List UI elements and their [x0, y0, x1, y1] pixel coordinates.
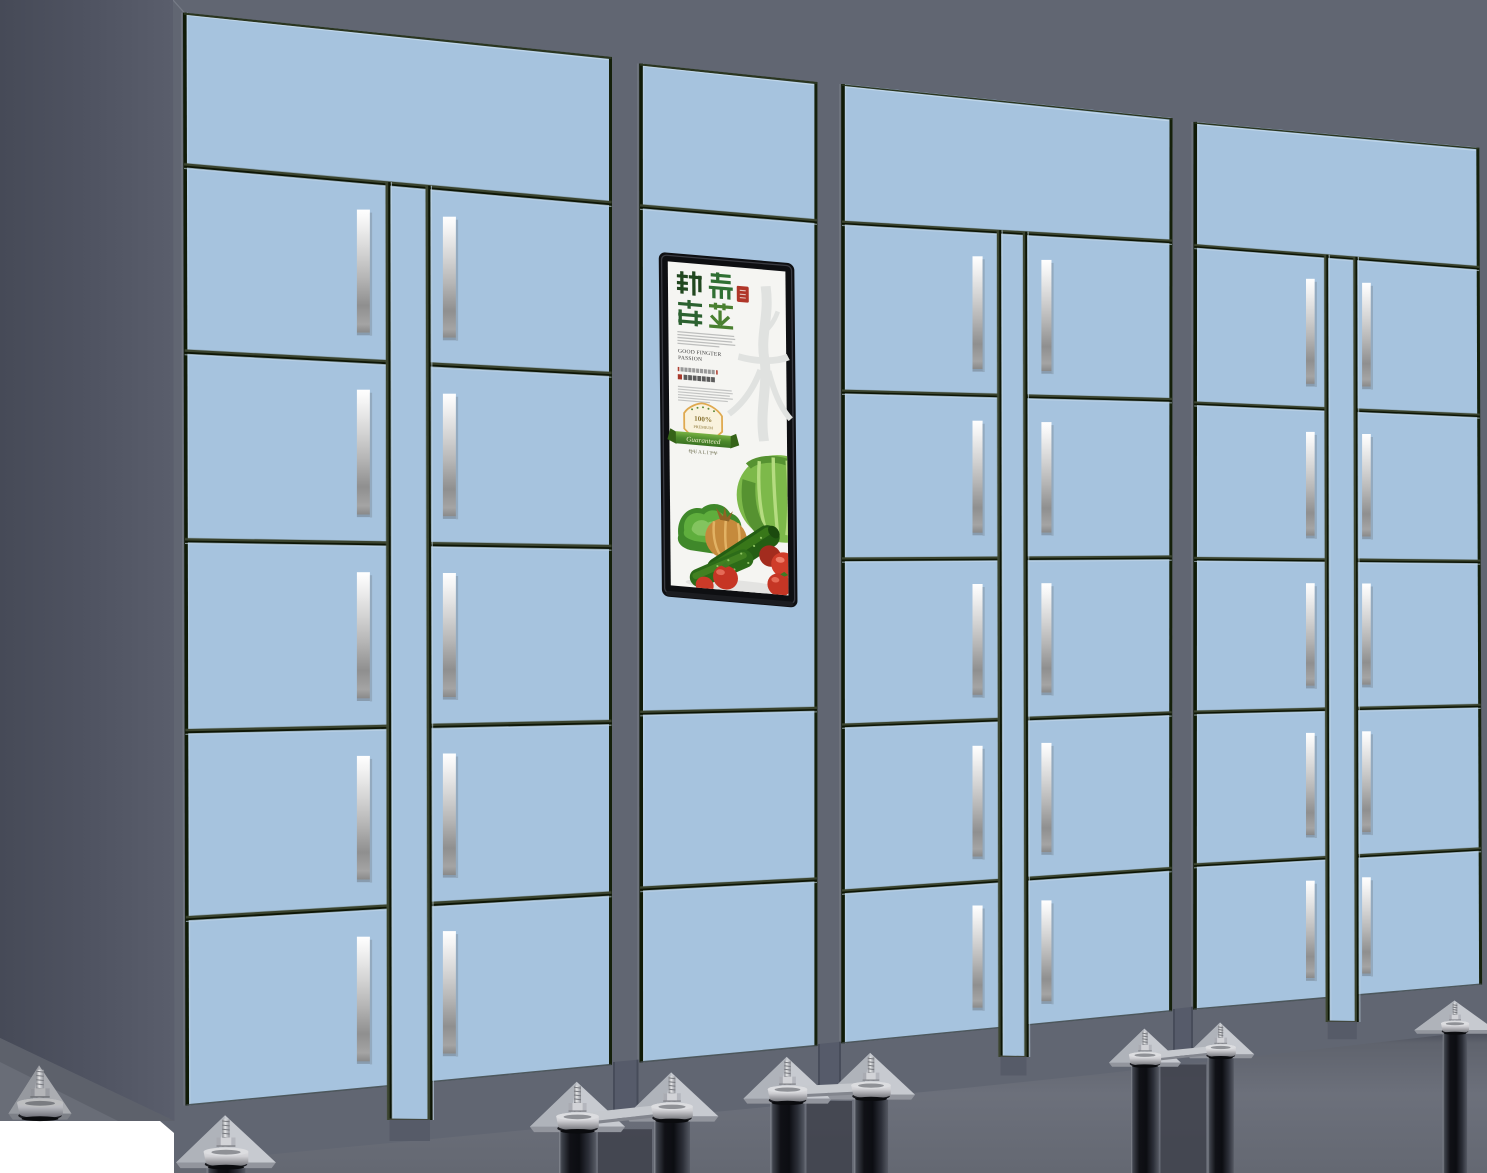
- svg-text:100%: 100%: [694, 415, 712, 424]
